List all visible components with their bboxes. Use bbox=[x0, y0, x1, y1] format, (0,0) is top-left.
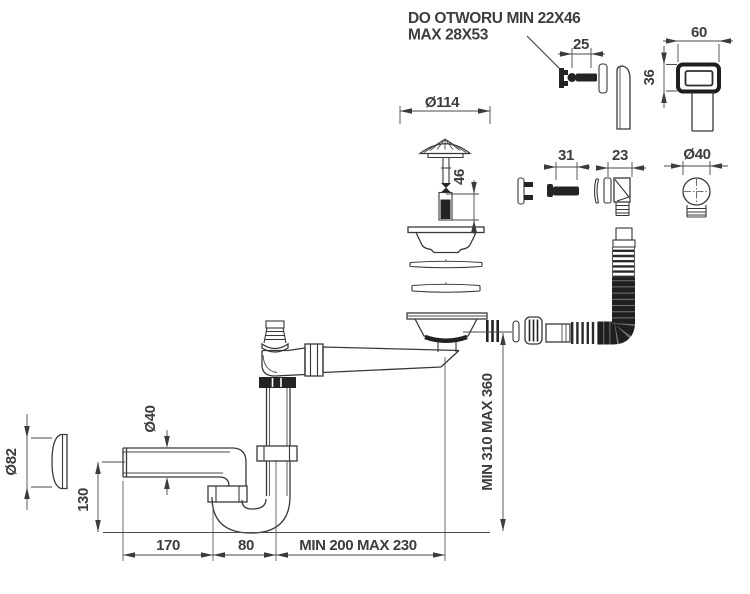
sealing-rings bbox=[410, 260, 482, 293]
dim-label-25: 25 bbox=[573, 36, 589, 53]
dim-label-82: Ø82 bbox=[3, 448, 20, 475]
siphon-assembly bbox=[123, 321, 459, 533]
connection-nut bbox=[525, 317, 542, 344]
dim-label-170: 170 bbox=[156, 537, 180, 554]
dim-installation-height: MIN 310 MAX 360 bbox=[463, 332, 512, 531]
dim-label-40-left: Ø40 bbox=[142, 405, 159, 432]
corrugated-hose bbox=[546, 228, 635, 342]
dim-label-31: 31 bbox=[558, 147, 574, 164]
overflow-cover-front bbox=[678, 65, 719, 132]
dim-trap-depth: 130 bbox=[75, 462, 125, 532]
elbow-plate bbox=[604, 178, 611, 203]
dim-label-46: 46 bbox=[451, 169, 468, 185]
hose-end-view bbox=[683, 178, 710, 217]
overflow-flange bbox=[518, 178, 533, 204]
siphon-installation-diagram: DO OTWORU MIN 22X46 MAX 28X53 25 60 bbox=[0, 0, 750, 594]
outlet-gasket bbox=[513, 321, 519, 342]
hole-size-note: DO OTWORU MIN 22X46 MAX 28X53 bbox=[408, 10, 581, 70]
p-trap bbox=[208, 486, 290, 533]
strainer-body-assembly bbox=[407, 313, 500, 352]
dim-label-23: 23 bbox=[612, 147, 628, 164]
dim-connector-screw: 31 bbox=[544, 147, 590, 180]
dim-overflow-screw: 25 bbox=[558, 36, 605, 68]
overflow-screw bbox=[568, 73, 598, 82]
dim-overflow-elbow: 23 bbox=[596, 147, 646, 177]
dim-strainer-diameter: Ø114 bbox=[400, 94, 490, 124]
dim-label-114: Ø114 bbox=[425, 94, 460, 111]
dim-overflow-width: 60 bbox=[663, 24, 733, 62]
overflow-elbow bbox=[614, 178, 630, 216]
overflow-seal-plate bbox=[599, 64, 607, 93]
connector-screw bbox=[547, 184, 579, 197]
dim-plug-height: 46 bbox=[446, 169, 479, 234]
dim-overflow-height: 36 bbox=[641, 46, 677, 108]
dim-waste-pipe-diameter: Ø40 bbox=[142, 405, 170, 495]
dim-label-min310: MIN 310 MAX 360 bbox=[479, 373, 496, 490]
wall-cover-cap bbox=[52, 435, 67, 489]
waste-pipe bbox=[123, 448, 246, 486]
dim-label-40-top: Ø40 bbox=[683, 146, 710, 163]
dim-label-80: 80 bbox=[238, 537, 254, 554]
overflow-cover-side bbox=[617, 66, 630, 129]
dim-label-36: 36 bbox=[641, 70, 658, 86]
elbow-gasket bbox=[595, 179, 599, 203]
technical-drawing-page: DO OTWORU MIN 22X46 MAX 28X53 25 60 bbox=[0, 0, 750, 594]
dim-label-130: 130 bbox=[75, 488, 92, 512]
dim-overflow-hose-diameter: Ø40 bbox=[664, 146, 728, 175]
note-leader-line bbox=[527, 36, 561, 70]
overflow-bracket bbox=[559, 68, 568, 88]
dim-rosette-diameter: Ø82 bbox=[3, 414, 52, 510]
dishwasher-inlet bbox=[262, 321, 288, 352]
note-line1: DO OTWORU MIN 22X46 bbox=[408, 10, 581, 27]
note-line2: MAX 28X53 bbox=[408, 27, 489, 44]
dim-label-60: 60 bbox=[691, 24, 707, 41]
dim-label-min200: MIN 200 MAX 230 bbox=[299, 537, 416, 554]
